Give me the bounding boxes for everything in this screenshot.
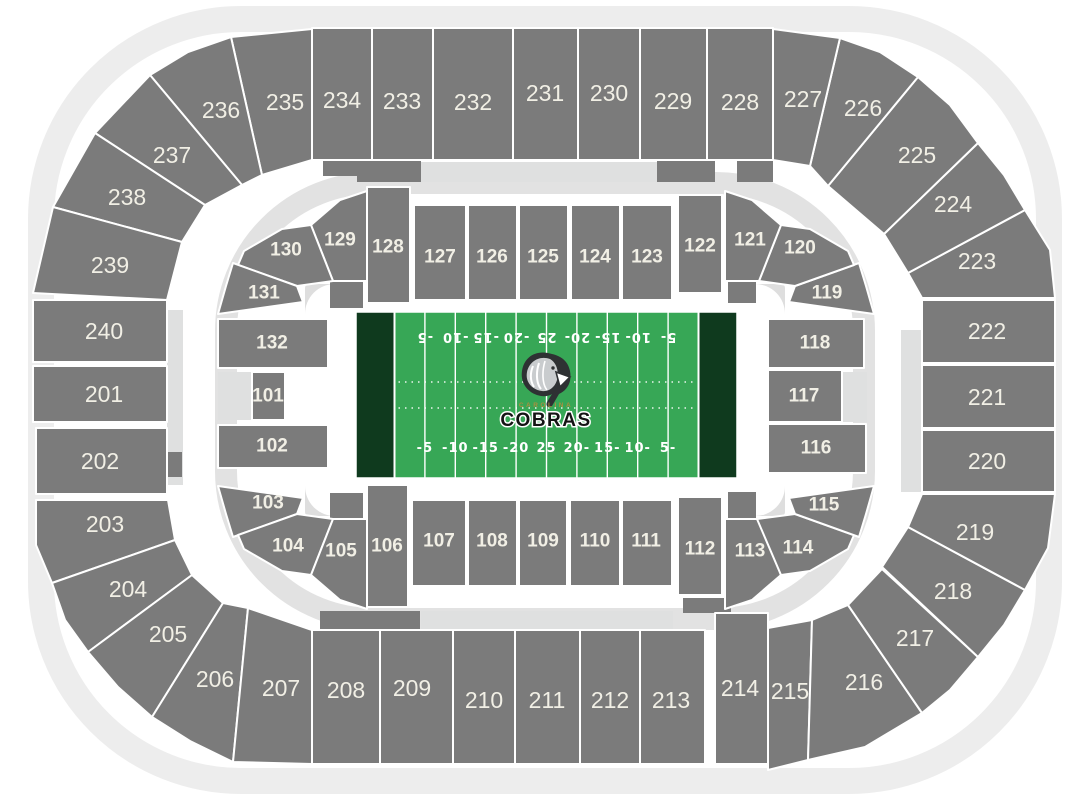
stadium-map: -5-5-10-10-15-15-20-20252520-20-15-15-10… [0,0,1090,801]
section-label-219: 219 [956,519,994,545]
section-label-121: 121 [734,230,766,251]
section-label-118: 118 [800,333,831,354]
section-label-209: 209 [393,675,431,701]
section-label-216: 216 [845,669,883,695]
team-name-text: COBRAS [500,410,591,431]
section-label-122: 122 [684,236,716,257]
section-tab-9 [330,493,363,520]
yard-number-top: -20 [503,329,530,344]
section-tab-2 [657,160,715,182]
section-tab-7 [167,452,182,477]
section-label-131: 131 [248,283,280,304]
section-label-235: 235 [266,89,304,115]
yard-number-top: 15- [594,329,621,344]
section-label-226: 226 [844,95,882,121]
section-label-230: 230 [590,80,628,106]
section-tab-4 [320,611,358,632]
yard-number-top: 5- [660,329,676,344]
section-label-109: 109 [527,531,559,552]
section-label-104: 104 [272,536,304,557]
section-label-207: 207 [262,675,300,701]
section-label-101: 101 [252,386,284,407]
seating-chart-page: -5-5-10-10-15-15-20-20252520-20-15-15-10… [0,0,1090,801]
section-label-227: 227 [784,86,822,112]
section-label-119: 119 [812,283,843,304]
yard-number-top: 25 [536,329,556,344]
section-label-239: 239 [91,252,129,278]
corridor-strip-1 [421,611,673,630]
yard-number-bottom: 15- [594,441,621,456]
yard-number-bottom: -15 [472,441,499,456]
section-label-214: 214 [721,675,760,701]
yard-number-bottom: 5- [660,441,676,456]
section-label-234: 234 [323,87,362,113]
section-label-102: 102 [256,436,288,457]
endzone-left [356,312,395,478]
section-label-117: 117 [789,386,820,407]
yard-number-bottom: 25 [536,441,556,456]
cobra-eye [551,366,554,369]
yard-number-bottom: -5 [417,441,433,456]
yard-number-bottom: -10 [442,441,469,456]
section-label-130: 130 [270,240,302,261]
section-label-206: 206 [196,666,234,692]
section-label-123: 123 [631,247,663,268]
section-tab-1 [357,160,421,182]
section-tab-6 [683,598,731,613]
section-label-203: 203 [86,511,124,537]
section-label-103: 103 [252,493,284,514]
section-label-202: 202 [81,448,119,474]
yard-number-bottom: 10- [624,441,651,456]
section-label-233: 233 [383,88,421,114]
section-label-208: 208 [327,677,365,703]
football-field: -5-5-10-10-15-15-20-20252520-20-15-15-10… [356,312,737,478]
section-label-106: 106 [371,536,403,557]
section-label-126: 126 [476,247,508,268]
section-label-236: 236 [202,97,240,123]
yard-number-top: -10 [442,329,469,344]
section-label-222: 222 [968,318,1006,344]
section-label-132: 132 [256,333,288,354]
walkway-patch-0 [218,372,252,420]
section-label-215: 215 [771,678,809,704]
section-label-205: 205 [149,621,187,647]
section-label-111: 111 [631,531,661,552]
section-label-201: 201 [85,381,123,407]
section-label-211: 211 [529,687,566,713]
corridor-strip-0 [421,162,657,182]
section-label-237: 237 [153,142,191,168]
section-label-116: 116 [801,438,832,459]
section-tab-3 [737,160,773,182]
section-label-210: 210 [465,687,503,713]
section-label-127: 127 [424,247,456,268]
yard-number-top: 10- [624,329,651,344]
section-label-115: 115 [809,495,840,516]
section-tab-5 [358,611,420,630]
section-label-213: 213 [652,687,690,713]
section-label-108: 108 [476,531,508,552]
section-label-212: 212 [591,687,629,713]
section-label-228: 228 [721,89,759,115]
team-location-text: CAROLINA [519,402,573,409]
section-label-114: 114 [783,538,814,559]
section-label-229: 229 [654,88,692,114]
endzone-right [699,312,738,478]
section-label-124: 124 [579,247,611,268]
section-label-120: 120 [784,238,816,259]
section-label-220: 220 [968,448,1006,474]
section-label-217: 217 [896,625,934,651]
section-label-224: 224 [934,191,973,217]
walkway-patch-2 [901,330,921,492]
section-label-105: 105 [325,541,357,562]
section-label-110: 110 [580,531,611,552]
section-label-204: 204 [109,576,148,602]
section-label-223: 223 [958,248,996,274]
section-label-113: 113 [735,541,766,562]
section-label-129: 129 [324,230,356,251]
section-label-232: 232 [454,89,492,115]
section-label-225: 225 [898,142,936,168]
section-label-221: 221 [968,384,1006,410]
walkway-patch-1 [843,372,867,422]
section-tab-0 [323,160,357,176]
yard-number-bottom: 20- [564,441,591,456]
yard-number-top: -5 [417,329,433,344]
yard-number-top: -15 [472,329,499,344]
section-label-238: 238 [108,184,146,210]
section-tab-8 [330,281,363,308]
section-label-107: 107 [423,531,455,552]
section-label-125: 125 [527,247,559,268]
section-label-218: 218 [934,578,972,604]
section-label-112: 112 [685,539,716,560]
section-label-128: 128 [372,237,404,258]
section-label-240: 240 [85,318,123,344]
section-label-231: 231 [526,80,564,106]
yard-number-top: 20- [564,329,591,344]
yard-number-bottom: -20 [503,441,530,456]
